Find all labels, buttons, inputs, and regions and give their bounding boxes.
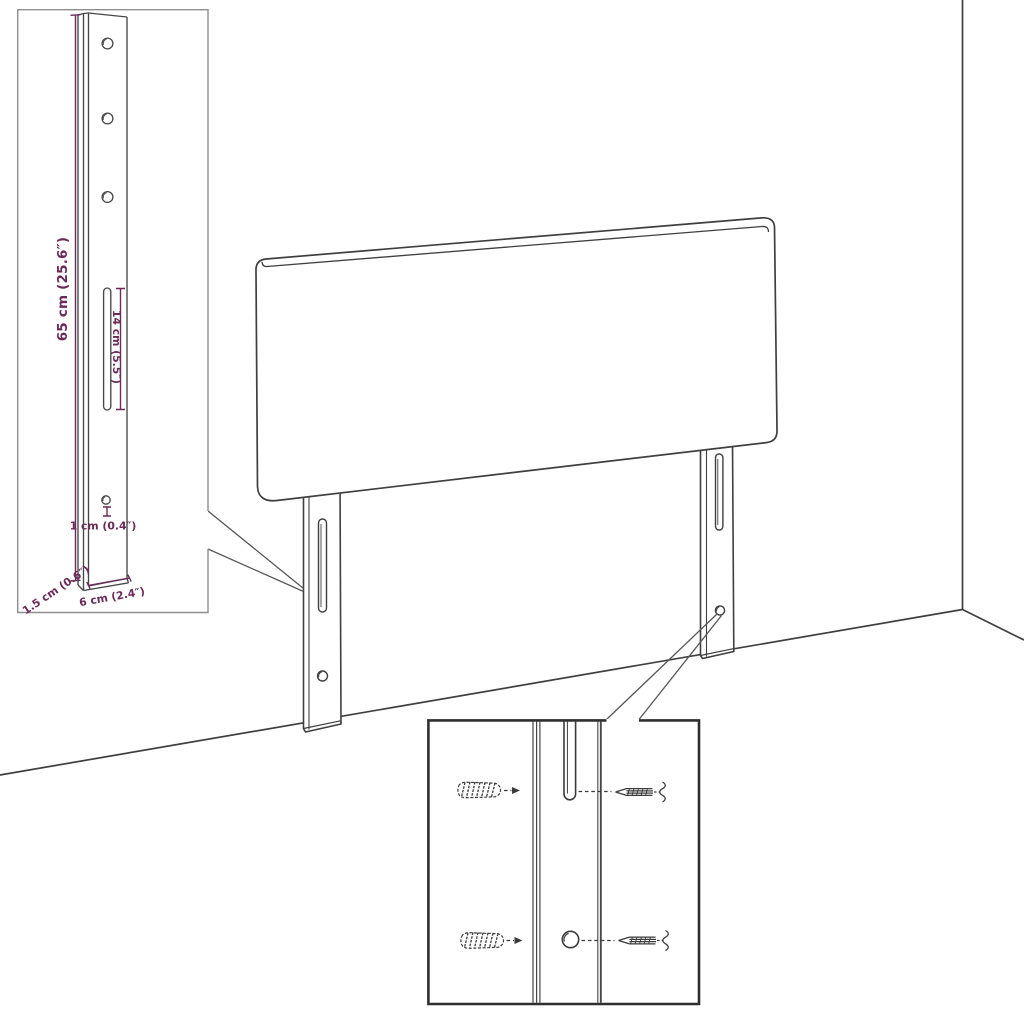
left-leg-hole <box>318 671 328 681</box>
dimension-label-height: 65 cm (25.6″) <box>55 237 71 342</box>
hardware-inset-callout-right <box>639 616 722 720</box>
floor-wall-line-right <box>963 610 1024 641</box>
product-diagram-image: 65 cm (25.6″) 14 cm (5.5″) 1 cm (0.4″) 1… <box>0 0 1024 1024</box>
hardware-inset-callout-left <box>607 614 718 720</box>
callout-lines <box>208 511 722 720</box>
dimension-label-slot-length: 14 cm (5.5″) <box>110 310 123 384</box>
right-leg-hole <box>715 606 724 615</box>
left-leg-slot <box>319 519 327 612</box>
leg-inset-callout-upper <box>208 511 304 589</box>
leg-inset-callout-lower <box>208 549 304 592</box>
assembly-diagram-canvas: 65 cm (25.6″) 14 cm (5.5″) 1 cm (0.4″) 1… <box>0 0 1024 1024</box>
hardware-detail-inset <box>427 719 701 1006</box>
right-leg-slot <box>716 454 723 530</box>
leg-detail-inset: 65 cm (25.6″) 14 cm (5.5″) 1 cm (0.4″) 1… <box>17 9 208 617</box>
dimension-label-hole-diameter: 1 cm (0.4″) <box>70 520 137 533</box>
headboard-panel <box>256 218 777 501</box>
